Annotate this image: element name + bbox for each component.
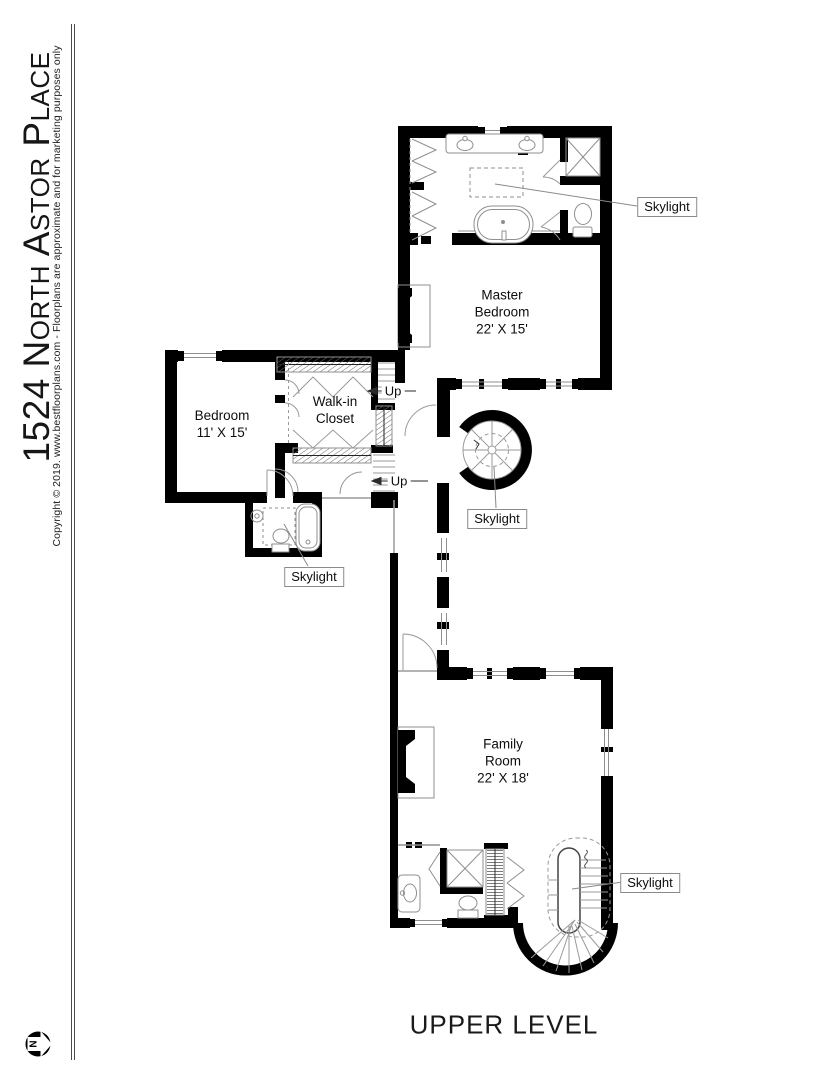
skylight-callout-curved-stair: Skylight [620,873,680,893]
stair-up-label-1: Up [382,384,405,399]
double-vanity [446,134,543,153]
shower-icon-master [566,138,600,176]
level-title: UPPER LEVEL [410,1010,599,1041]
stair-up-label-2: Up [388,474,411,489]
north-arrow-icon: N [26,1031,53,1057]
hall-door-arcs [267,405,436,554]
room-name: Room [485,754,521,769]
lower-bathroom-fixtures [398,845,524,918]
room-name: Family [483,737,523,752]
room-label-walkin-closet: Walk-in Closet [313,393,358,427]
bedroom-window-glass [184,354,216,358]
skylight-callout-master-bath: Skylight [637,197,697,217]
spiral-stair-treads [463,421,521,479]
room-label-bedroom: Bedroom 11' X 15' [195,407,250,441]
family-room-entry-door [398,634,437,671]
room-name: Bedroom [475,305,530,320]
skylight-callout-hall-bath: Skylight [284,567,344,587]
hall-bathroom-fixtures [251,504,320,552]
room-name: Closet [316,411,354,426]
copyright-text: Copyright © 2019. www.bestfloorplans.com… [51,45,63,546]
skylight-leader-lines [284,184,637,889]
floorplan-page: N 1524 North Astor Place Copyright © 201… [0,0,835,1080]
room-name: Master [481,288,522,303]
fireplace-master-bedroom [398,285,430,347]
fireplace-family-room [398,727,434,798]
room-dimensions: 22' X 18' [477,771,529,786]
toilet-icon-master [573,204,592,238]
master-suite-walls [395,126,612,390]
skylight-callout-spiral-stair: Skylight [467,509,527,529]
room-name: Walk-in [313,394,358,409]
room-label-master-bedroom: Master Bedroom 22' X 15' [475,287,530,338]
master-suite-window-glass [462,131,572,387]
compartment-doors [541,160,560,240]
skylight-outline-master-bath [470,168,523,197]
sidebar-divider [71,24,75,1060]
room-dimensions: 11' X 15' [197,425,248,440]
hall-walls-at-spiral [437,380,450,677]
floorplan-drawing: N [0,0,835,1080]
north-letter: N [29,1040,40,1047]
room-dimensions: 22' X 15' [476,322,528,337]
room-name: Bedroom [195,408,250,423]
room-label-family-room: Family Room 22' X 18' [477,736,529,787]
